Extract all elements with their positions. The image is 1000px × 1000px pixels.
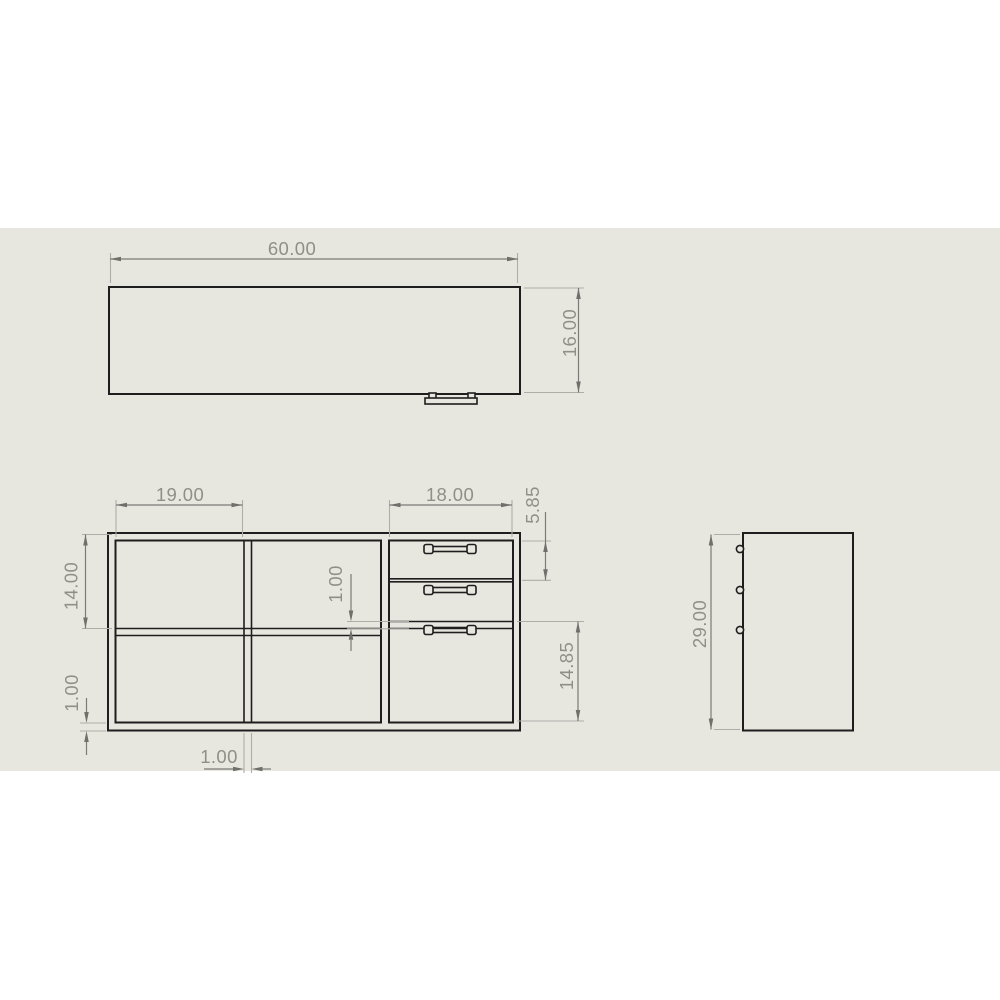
drawing-sheet [0,228,1000,771]
dim-drawer-gap-label: 1.00 [325,565,346,603]
dim-upper-opening-label: 14.00 [61,562,82,610]
side-handle-knob [736,586,743,593]
cad-drawing-image: 60.00 16.00 [0,0,1000,1000]
drawing-svg: 60.00 16.00 [0,0,1000,1000]
dim-drawer-opening-label: 18.00 [426,484,474,505]
dim-top-width-label: 60.00 [268,238,316,259]
dim-side-height-label: 29.00 [689,600,710,648]
dim-divider-label: 1.00 [200,746,238,767]
handle-bar [425,398,477,404]
dim-top-depth-label: 16.00 [559,309,580,357]
dim-bottom-drawer-label: 14.85 [556,642,577,690]
dim-top-drawer-label: 5.85 [522,486,543,524]
side-handle-knob [736,545,743,552]
dim-bottom-panel-label: 1.00 [61,674,82,712]
dim-left-opening-label: 19.00 [156,484,204,505]
side-handle-knob [736,626,743,633]
